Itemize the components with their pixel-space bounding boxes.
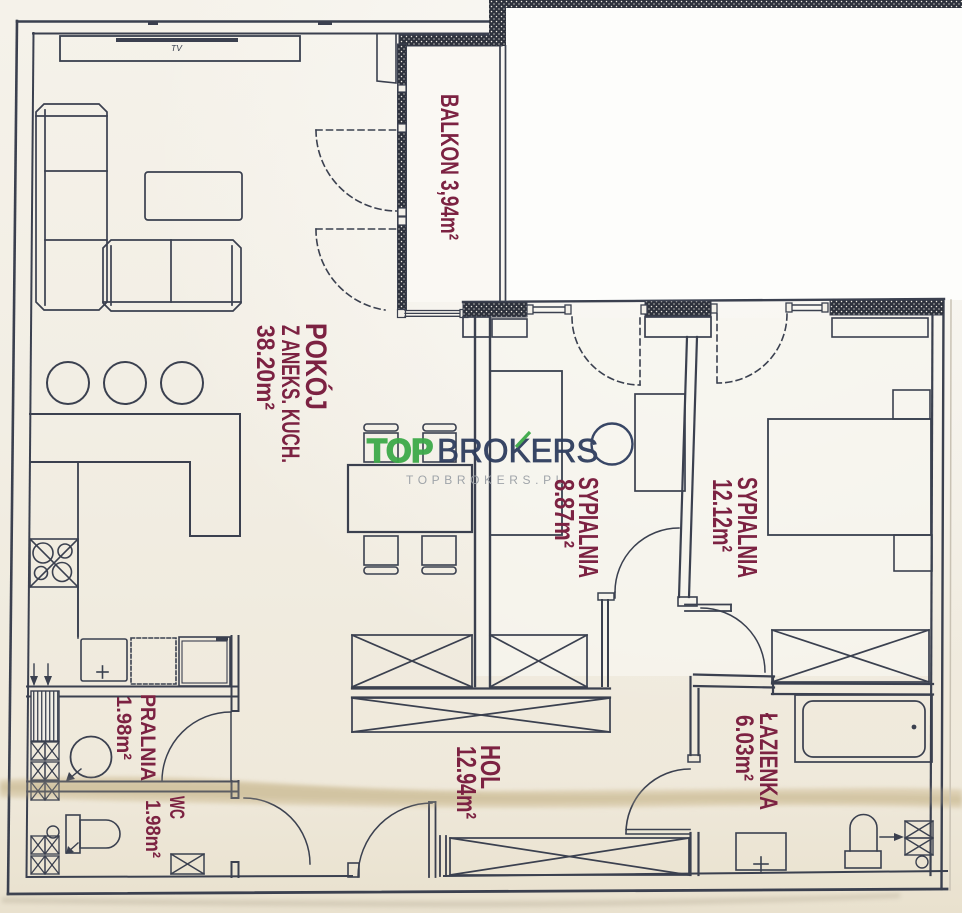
svg-text:TOPBROKERS.PL: TOPBROKERS.PL (406, 473, 567, 487)
svg-text:ŁAZIENKA: ŁAZIENKA (754, 713, 782, 810)
svg-text:1.98m²: 1.98m² (112, 696, 135, 760)
svg-text:Z ANEKS. KUCH.: Z ANEKS. KUCH. (276, 325, 304, 463)
svg-text:POKÓJ: POKÓJ (299, 323, 333, 410)
svg-text:1.98m²: 1.98m² (141, 800, 164, 858)
svg-text:WC: WC (165, 796, 188, 819)
svg-text:6.03m²: 6.03m² (730, 715, 758, 781)
svg-text:38.20m²: 38.20m² (251, 325, 279, 410)
svg-text:TV: TV (171, 43, 183, 53)
svg-text:TOP: TOP (367, 432, 433, 469)
svg-text:12.12m²: 12.12m² (706, 479, 736, 552)
svg-text:BROKERS: BROKERS (437, 432, 598, 469)
svg-text:12.94m²: 12.94m² (450, 746, 480, 819)
svg-text:8.87m²: 8.87m² (548, 479, 578, 548)
svg-text:PRALNIA: PRALNIA (136, 694, 159, 781)
svg-text:BALKON 3,94m²: BALKON 3,94m² (435, 94, 463, 240)
